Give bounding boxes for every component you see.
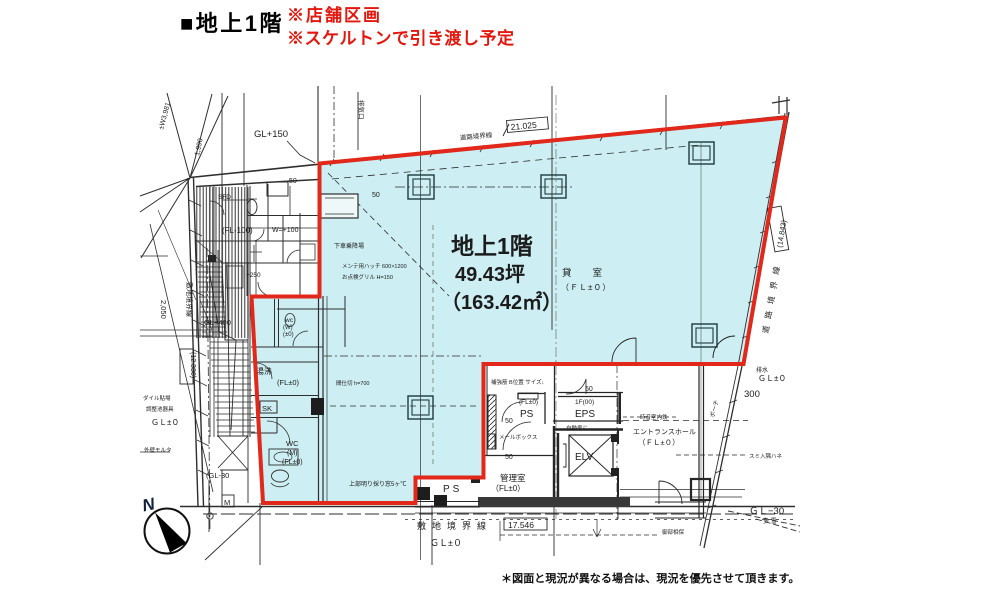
svg-text:ELV: ELV xyxy=(575,452,593,463)
svg-text:メールボックス: メールボックス xyxy=(499,433,537,441)
svg-text:300: 300 xyxy=(744,389,760,400)
svg-text:(W): (W) xyxy=(283,325,293,331)
svg-text:湯沸: 湯沸 xyxy=(256,366,272,376)
svg-text:50: 50 xyxy=(372,192,380,199)
svg-text:±W3,981: ±W3,981 xyxy=(158,102,172,131)
svg-text:上部明り採り窓5ヶ℃: 上部明り採り窓5ヶ℃ xyxy=(349,480,406,488)
svg-text:スミ入隅ハネ: スミ入隅ハネ xyxy=(749,452,783,460)
svg-text:GL+150: GL+150 xyxy=(254,129,288,140)
svg-text:50: 50 xyxy=(505,454,513,461)
svg-text:(FL±0): (FL±0) xyxy=(519,399,538,406)
svg-text:ポーチ: ポーチ xyxy=(708,399,720,418)
svg-text:W=+100: W=+100 xyxy=(272,227,299,234)
svg-text:御部相保: 御部相保 xyxy=(662,528,685,536)
svg-text:自動扉じ: 自動扉じ xyxy=(566,424,588,432)
svg-text:ＧＬ±０: ＧＬ±０ xyxy=(758,374,786,383)
svg-text:PS: PS xyxy=(520,409,534,420)
svg-text:(FL±0): (FL±0) xyxy=(282,459,303,466)
svg-text:間仕切 h=700: 間仕切 h=700 xyxy=(336,379,369,387)
svg-text:1,990: 1,990 xyxy=(194,138,205,157)
svg-text:EPS: EPS xyxy=(575,409,595,420)
svg-text:排水: 排水 xyxy=(756,366,768,374)
svg-text:PS: PS xyxy=(443,484,462,495)
svg-text:多 雪: 多 雪 xyxy=(763,517,777,525)
svg-text:地上1階: 地上1階 xyxy=(451,233,533,259)
svg-text:道路境界線: 道路境界線 xyxy=(760,259,783,335)
svg-text:時音室内鉄: 時音室内鉄 xyxy=(640,413,668,421)
svg-text:(±0): (±0) xyxy=(283,332,294,338)
svg-text:敷地境界線: 敷地境界線 xyxy=(417,520,492,531)
svg-text:（FL±0）: （FL±0） xyxy=(491,484,525,493)
svg-text:M: M xyxy=(224,498,230,507)
svg-text:排気口: 排気口 xyxy=(357,100,366,120)
svg-text:+250: +250 xyxy=(246,272,261,279)
svg-text:道路境界線: 道路境界線 xyxy=(459,130,493,142)
svg-text:ダイル貼場: ダイル貼場 xyxy=(143,394,171,402)
svg-text:(GL-30: (GL-30 xyxy=(206,471,229,480)
svg-text:ＧＬ±０: ＧＬ±０ xyxy=(151,418,179,427)
svg-text:補強筋 B位置 サイズ↓: 補強筋 B位置 サイズ↓ xyxy=(491,378,545,386)
svg-text:（ＦＬ±０）: （ＦＬ±０） xyxy=(561,283,611,292)
svg-text:(FL-100): (FL-100) xyxy=(222,226,253,235)
svg-text:50: 50 xyxy=(505,418,513,425)
svg-text:wc: wc xyxy=(284,317,294,324)
svg-text:50: 50 xyxy=(289,178,297,185)
svg-text:管理室: 管理室 xyxy=(500,473,526,483)
svg-text:メンテ用ハッチ 600×1200: メンテ用ハッチ 600×1200 xyxy=(342,263,407,270)
svg-text:敷地境界線: 敷地境界線 xyxy=(185,282,194,317)
svg-text:50: 50 xyxy=(585,386,593,393)
svg-text:49.43坪: 49.43坪 xyxy=(455,263,525,286)
svg-text:ＧＬ−30: ＧＬ−30 xyxy=(749,506,784,517)
svg-text:GL+400: GL+400 xyxy=(204,318,231,327)
svg-text:1F(00): 1F(00) xyxy=(575,399,594,406)
svg-text:外壁モルタ: 外壁モルタ xyxy=(144,446,172,454)
svg-text:2,050: 2,050 xyxy=(159,300,168,319)
svg-text:ＧＬ±０: ＧＬ±０ xyxy=(430,538,462,548)
svg-text:WC: WC xyxy=(286,439,299,448)
svg-text:(FL±0): (FL±0) xyxy=(277,378,300,387)
svg-text:お点検グリル H=150: お点検グリル H=150 xyxy=(342,273,393,281)
svg-text:SK: SK xyxy=(262,404,272,413)
svg-text:下車乗降場: 下車乗降場 xyxy=(334,242,364,250)
svg-text:調整池器具: 調整池器具 xyxy=(146,405,174,413)
svg-text:（163.42㎡）: （163.42㎡） xyxy=(441,290,562,314)
svg-text:17.546: 17.546 xyxy=(508,520,534,530)
svg-text:（ＦＬ±０）: （ＦＬ±０） xyxy=(638,438,680,447)
svg-text:エントランスホール: エントランスホール xyxy=(633,428,696,436)
svg-text:SFD: SFD xyxy=(218,194,231,201)
svg-text:貸室: 貸室 xyxy=(562,267,623,279)
svg-text:(M): (M) xyxy=(287,450,298,457)
svg-text:(14.843): (14.843) xyxy=(775,219,788,248)
svg-text:(12.336): (12.336) xyxy=(189,352,196,378)
